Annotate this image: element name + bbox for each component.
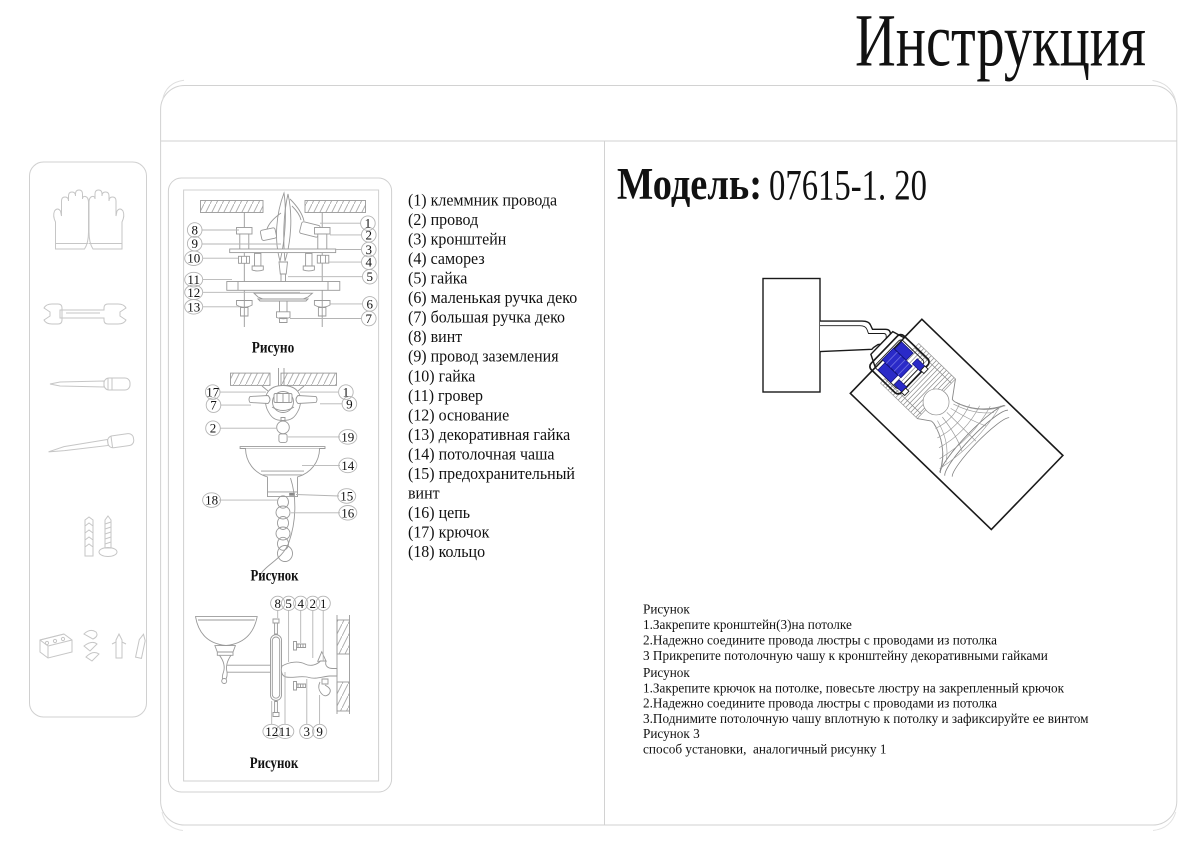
- svg-text:10: 10: [187, 251, 200, 266]
- svg-text:9: 9: [346, 396, 353, 411]
- svg-text:2: 2: [210, 421, 217, 436]
- svg-text:2.Надежно соедините провода лю: 2.Надежно соедините провода люстры с про…: [643, 632, 997, 647]
- svg-text:12: 12: [187, 285, 200, 300]
- svg-text:(13) декоративная гайка: (13) декоративная гайка: [408, 424, 571, 444]
- svg-text:19: 19: [341, 429, 354, 444]
- svg-text:2.Надежно соедините провода лю: 2.Надежно соедините провода люстры с про…: [643, 695, 997, 710]
- svg-text:способ установки, аналогичный: способ установки, аналогичный рисунку 1: [643, 741, 886, 756]
- svg-text:4: 4: [297, 596, 304, 611]
- svg-text:15: 15: [340, 489, 353, 504]
- svg-text:18: 18: [205, 493, 218, 508]
- svg-text:Рисуно: Рисуно: [252, 340, 295, 357]
- svg-text:(5) гайка: (5) гайка: [408, 268, 468, 288]
- svg-text:Рисунок: Рисунок: [643, 601, 690, 616]
- svg-text:1.Закрепите крючок на потолке,: 1.Закрепите крючок на потолке, повесьте …: [643, 680, 1064, 695]
- svg-text:9: 9: [316, 724, 323, 739]
- svg-text:(9) провод заземления: (9) провод заземления: [408, 346, 559, 366]
- svg-text:1.Закрепите кронштейн(3)на пот: 1.Закрепите кронштейн(3)на потолке: [643, 617, 852, 633]
- svg-text:(4) саморез: (4) саморез: [408, 249, 485, 269]
- svg-text:3.Поднимите потолочную чашу вп: 3.Поднимите потолочную чашу вплотную к п…: [643, 711, 1089, 726]
- svg-text:(6) маленькая ручка деко: (6) маленькая ручка деко: [408, 288, 577, 308]
- svg-text:Рисунок 3: Рисунок 3: [643, 726, 700, 741]
- svg-text:11: 11: [279, 724, 292, 739]
- svg-text:3: 3: [304, 724, 311, 739]
- svg-text:(3) кронштейн: (3) кронштейн: [408, 229, 507, 249]
- svg-text:3 Прикрепите потолочную чашу к: 3 Прикрепите потолочную чашу к кронштейн…: [643, 648, 1048, 663]
- svg-text:07615-1. 20: 07615-1. 20: [769, 163, 927, 210]
- svg-text:Модель:: Модель:: [617, 159, 762, 209]
- svg-text:(17) крючок: (17) крючок: [408, 522, 490, 542]
- svg-text:4: 4: [366, 255, 373, 270]
- svg-text:(8) винт: (8) винт: [408, 327, 462, 347]
- svg-text:1: 1: [320, 596, 327, 611]
- svg-text:2: 2: [310, 596, 317, 611]
- svg-text:(14) потолочная чаша: (14) потолочная чаша: [408, 444, 555, 464]
- svg-text:Рисунок: Рисунок: [251, 568, 299, 585]
- svg-text:2: 2: [366, 227, 373, 242]
- svg-text:8: 8: [274, 596, 281, 611]
- svg-text:13: 13: [187, 299, 200, 314]
- svg-text:(15) предохранительный: (15) предохранительный: [408, 464, 575, 484]
- svg-text:(7) большая ручка деко: (7) большая ручка деко: [408, 307, 565, 327]
- svg-text:(1) клеммник провода: (1) клеммник провода: [408, 190, 558, 210]
- svg-text:7: 7: [366, 311, 373, 326]
- svg-text:16: 16: [341, 505, 355, 520]
- svg-text:(18) кольцо: (18) кольцо: [408, 542, 485, 562]
- svg-text:винт: винт: [408, 483, 440, 503]
- svg-text:Рисунок: Рисунок: [250, 755, 299, 772]
- svg-text:(10) гайка: (10) гайка: [408, 366, 476, 386]
- svg-text:5: 5: [285, 596, 292, 611]
- svg-text:Рисунок: Рисунок: [643, 665, 690, 680]
- svg-text:(12) основание: (12) основание: [408, 405, 509, 425]
- svg-text:14: 14: [341, 458, 355, 473]
- svg-text:6: 6: [367, 296, 374, 311]
- svg-text:Инструкция: Инструкция: [855, 0, 1146, 83]
- svg-text:7: 7: [210, 398, 217, 413]
- svg-text:9: 9: [191, 236, 198, 251]
- svg-text:12: 12: [265, 724, 278, 739]
- svg-text:(2) провод: (2) провод: [408, 209, 479, 229]
- svg-text:(11) гровер: (11) гровер: [408, 385, 483, 405]
- svg-text:5: 5: [367, 269, 374, 284]
- svg-text:(16) цепь: (16) цепь: [408, 503, 471, 523]
